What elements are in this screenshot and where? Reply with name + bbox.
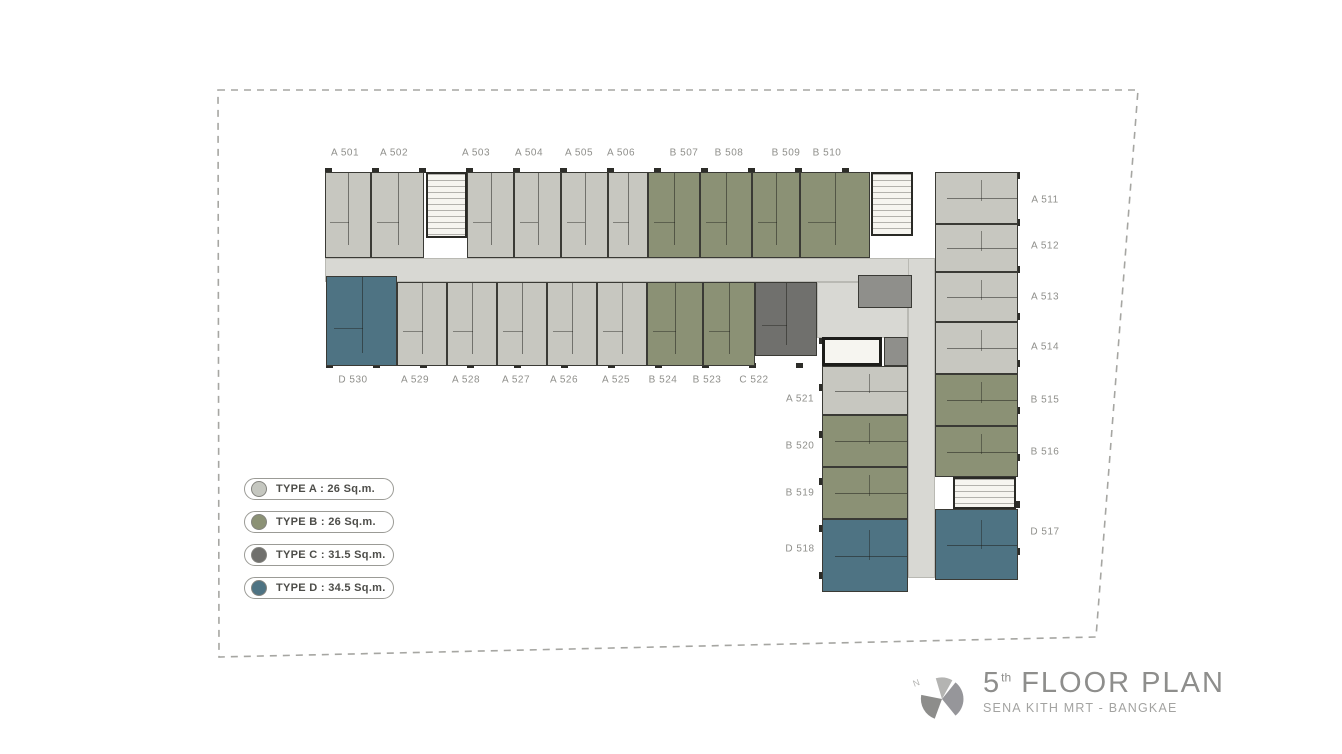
unit-D530 (326, 276, 397, 366)
floor-plan: A 501A 502A 503A 504A 505A 506B 507B 508… (0, 0, 1342, 754)
legend-label: TYPE A : 26 Sq.m. (276, 483, 375, 495)
unit-A505 (561, 172, 608, 258)
unit-A528 (447, 282, 497, 366)
unit-label: D 518 (785, 544, 814, 555)
unit-label: C 522 (739, 375, 768, 386)
project-name: SENA KITH MRT - BANGKAE (983, 701, 1225, 715)
unit-label: B 523 (693, 375, 722, 386)
unit-label: B 507 (670, 148, 699, 159)
unit-label: A 501 (331, 148, 359, 159)
legend-item-type-d: TYPE D : 34.5 Sq.m. (244, 577, 394, 599)
unit-A506 (608, 172, 648, 258)
legend-item-type-a: TYPE A : 26 Sq.m. (244, 478, 394, 500)
stair-core-top-right (871, 172, 913, 236)
unit-label: B 510 (813, 148, 842, 159)
unit-label: D 517 (1030, 527, 1059, 538)
unit-A525 (597, 282, 647, 366)
unit-C522 (755, 282, 817, 356)
unit-A511 (935, 172, 1018, 224)
title-block: N 5th FLOOR PLAN SENA KITH MRT - BANGKAE (915, 668, 1225, 726)
unit-B507 (648, 172, 700, 258)
stair-core-top-left (426, 172, 467, 238)
legend-label: TYPE C : 31.5 Sq.m. (276, 549, 386, 561)
unit-B510 (800, 172, 870, 258)
unit-label: A 521 (786, 394, 814, 405)
unit-B516 (935, 426, 1018, 477)
unit-label: B 524 (649, 375, 678, 386)
unit-D518 (822, 519, 908, 592)
unit-label: A 503 (462, 148, 490, 159)
unit-A513 (935, 272, 1018, 322)
stair-core-mid (822, 337, 882, 366)
corridor (908, 258, 935, 578)
unit-label: A 528 (452, 375, 480, 386)
unit-label: A 525 (602, 375, 630, 386)
unit-B520 (822, 415, 908, 467)
stair-core-right (953, 477, 1016, 509)
unit-A527 (497, 282, 547, 366)
unit-A503 (467, 172, 514, 258)
unit-label: A 513 (1031, 292, 1059, 303)
floor-plan-title: 5th FLOOR PLAN (983, 668, 1225, 698)
unit-B523 (703, 282, 755, 366)
unit-A504 (514, 172, 561, 258)
unit-label: A 527 (502, 375, 530, 386)
unit-label: A 512 (1031, 241, 1059, 252)
unit-label: A 506 (607, 148, 635, 159)
unit-label: B 519 (786, 488, 815, 499)
unit-D517 (935, 509, 1018, 580)
unit-label: A 529 (401, 375, 429, 386)
unit-label: B 515 (1031, 395, 1060, 406)
unit-label: A 511 (1031, 195, 1058, 206)
shaft (884, 337, 908, 366)
unit-label: A 504 (515, 148, 543, 159)
unit-A514 (935, 322, 1018, 374)
unit-A501 (325, 172, 371, 258)
legend-item-type-c: TYPE C : 31.5 Sq.m. (244, 544, 394, 566)
floor-plan-page: A 501A 502A 503A 504A 505A 506B 507B 508… (0, 0, 1342, 754)
unit-label: B 509 (772, 148, 801, 159)
unit-label: B 516 (1031, 447, 1060, 458)
unit-B524 (647, 282, 703, 366)
unit-B509 (752, 172, 800, 258)
unit-A521 (822, 366, 908, 415)
unit-B515 (935, 374, 1018, 426)
type-d-color-dot (251, 580, 267, 596)
unit-B519 (822, 467, 908, 519)
type-b-color-dot (251, 514, 267, 530)
corridor (325, 258, 935, 282)
type-a-color-dot (251, 481, 267, 497)
legend-label: TYPE D : 34.5 Sq.m. (276, 582, 386, 594)
unit-type-legend: TYPE A : 26 Sq.m. TYPE B : 26 Sq.m. TYPE… (244, 478, 394, 599)
unit-label: D 530 (338, 375, 367, 386)
unit-label: A 514 (1031, 342, 1059, 353)
unit-label: A 502 (380, 148, 408, 159)
unit-B508 (700, 172, 752, 258)
mech-room (858, 275, 912, 308)
unit-A529 (397, 282, 447, 366)
unit-label: A 505 (565, 148, 593, 159)
unit-A502 (371, 172, 424, 258)
unit-label: B 508 (715, 148, 744, 159)
legend-item-type-b: TYPE B : 26 Sq.m. (244, 511, 394, 533)
legend-label: TYPE B : 26 Sq.m. (276, 516, 376, 528)
type-c-color-dot (251, 547, 267, 563)
sena-pinwheel-logo-icon (915, 672, 969, 726)
unit-label: A 526 (550, 375, 578, 386)
unit-A526 (547, 282, 597, 366)
unit-label: B 520 (786, 441, 815, 452)
unit-A512 (935, 224, 1018, 272)
